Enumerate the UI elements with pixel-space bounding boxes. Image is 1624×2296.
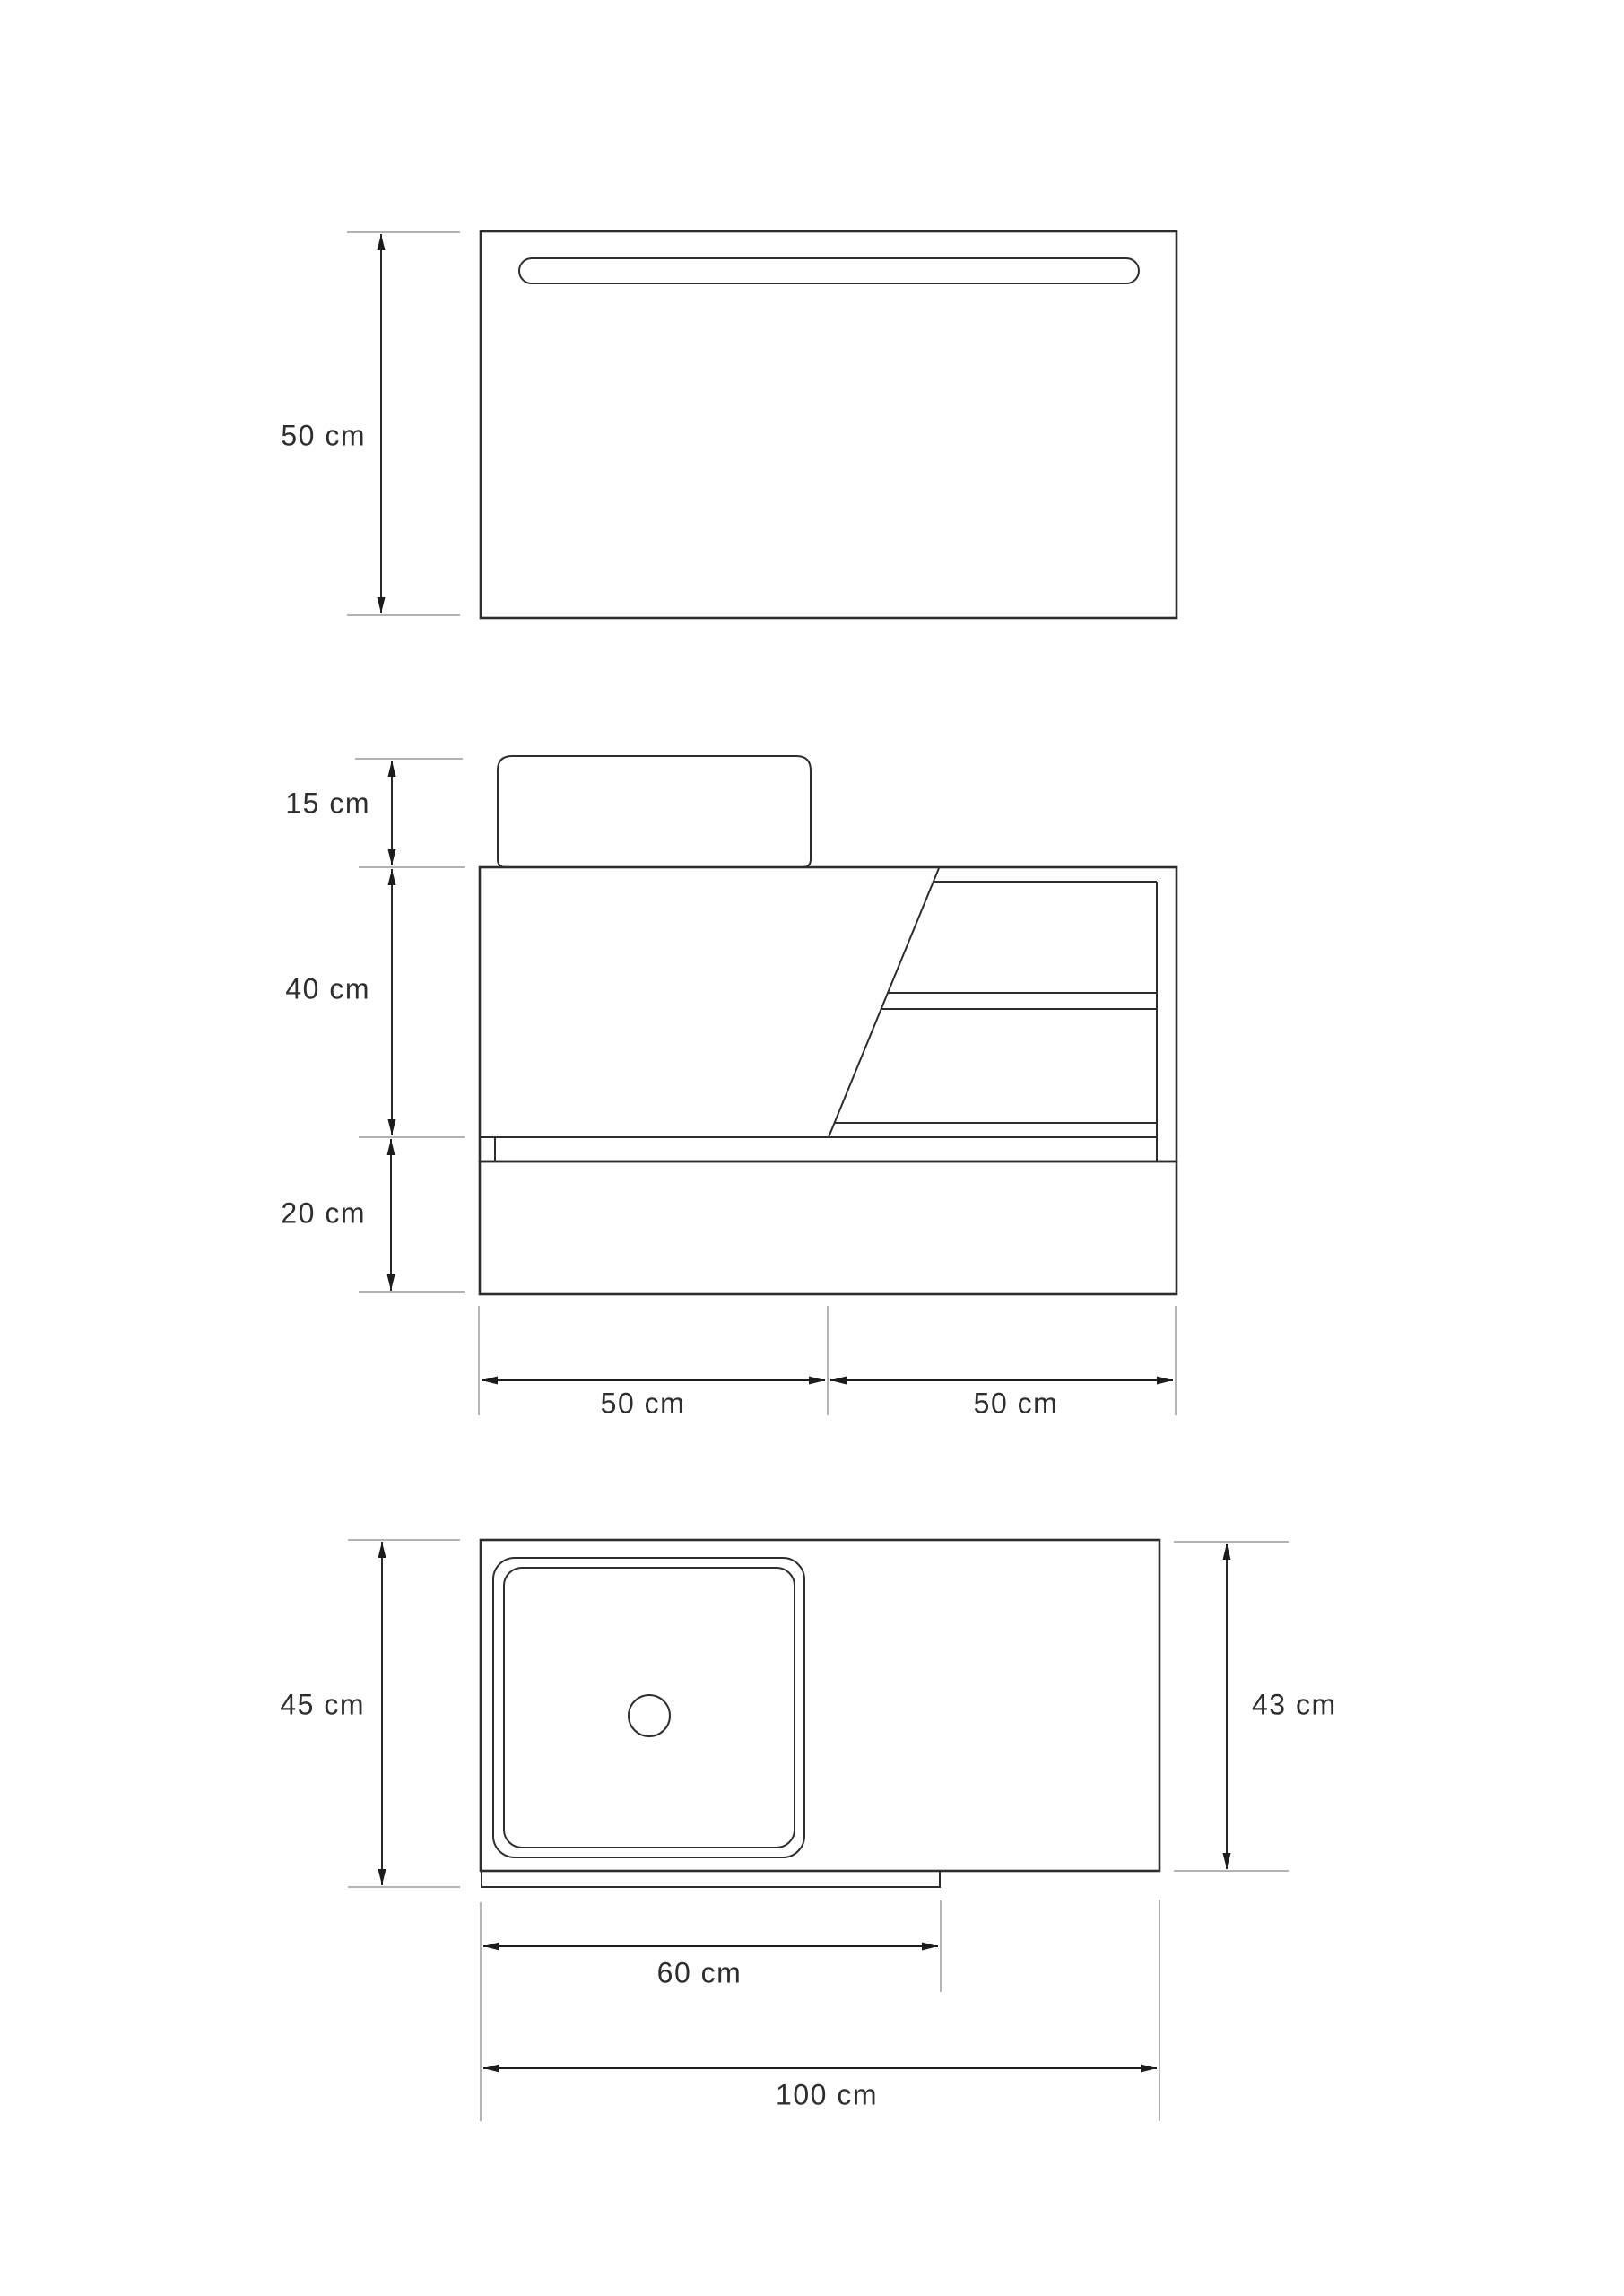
dim-vanity-widths: 50 cm 50 cm (479, 1306, 1176, 1419)
total-depth-label: 45 cm (280, 1688, 365, 1720)
front-ledge (482, 1871, 940, 1887)
dim-total-width: 100 cm (483, 1900, 1159, 2121)
led-strip (519, 258, 1139, 283)
dim-drawer-height: 20 cm (281, 1137, 465, 1292)
vanity-front-view: 15 cm 40 cm 20 cm 50 cm 50 cm (281, 756, 1177, 1419)
cabinet-outline (480, 867, 1177, 1161)
mirror-height-label: 50 cm (281, 419, 366, 451)
mirror-front-view: 50 cm (281, 231, 1177, 618)
technical-drawing: 50 cm 15 cm 40 cm 20 cm (0, 0, 1624, 2296)
countertop-basin (498, 756, 811, 867)
sink-module-width-label: 60 cm (657, 1956, 743, 1988)
drawing-sheet: 50 cm 15 cm 40 cm 20 cm (0, 0, 1624, 2296)
dim-basin-height: 15 cm (285, 759, 463, 865)
dim-counter-depth-left: 45 cm (280, 1540, 460, 1887)
counter-depth-label: 43 cm (1252, 1688, 1337, 1720)
cabinet-height-label: 40 cm (285, 972, 370, 1004)
dim-cabinet-height: 40 cm (285, 867, 465, 1135)
sink-outer-rim (493, 1558, 804, 1857)
dim-mirror-height: 50 cm (281, 232, 460, 615)
drawer-outline (480, 1161, 1177, 1294)
right-width-label: 50 cm (974, 1387, 1059, 1419)
sink-inner-rim (504, 1568, 795, 1848)
left-width-label: 50 cm (601, 1387, 686, 1419)
counter-outline (481, 1540, 1159, 1871)
dim-counter-depth-right: 43 cm (1174, 1542, 1337, 1871)
basin-height-label: 15 cm (285, 787, 370, 819)
mirror-outline (481, 231, 1177, 618)
counter-top-view: 45 cm 43 cm 60 cm 100 cm (280, 1540, 1336, 2121)
drain-hole (629, 1695, 670, 1736)
drawer-height-label: 20 cm (281, 1196, 366, 1229)
total-width-label: 100 cm (776, 2078, 878, 2110)
door-diagonal-line (829, 868, 939, 1137)
